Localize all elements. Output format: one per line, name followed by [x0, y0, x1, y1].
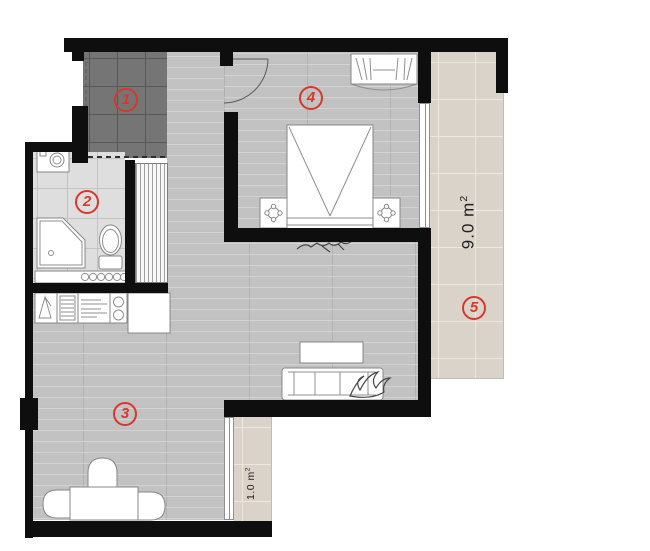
wall-bedroom-left — [224, 112, 238, 242]
bath-shelf-icon — [35, 271, 128, 283]
wall-door-stub — [220, 52, 233, 66]
fixtures-layer — [0, 0, 650, 551]
room-label-bedroom: 4 — [299, 86, 323, 110]
floor-plan: 1 2 3 4 5 9.0 m2 1.0 m2 — [0, 0, 650, 551]
wall-bottom — [25, 521, 272, 537]
wall-top — [64, 38, 508, 52]
dining-table-icon — [70, 487, 138, 520]
wall-left-upper — [72, 52, 84, 61]
bed-icon — [287, 125, 373, 233]
fridge-icon — [128, 293, 170, 333]
small-balcony-area-value: 1.0 m — [245, 471, 257, 500]
balcony-area-label: 9.0 m2 — [453, 177, 475, 267]
wall-living-bottom — [224, 400, 431, 417]
wall-pillar — [20, 398, 38, 430]
room-label-living: 3 — [113, 402, 137, 426]
wall-bedroom-bottom — [224, 228, 431, 242]
room-label-balcony: 5 — [462, 296, 486, 320]
small-balcony-area-label: 1.0 m2 — [242, 454, 255, 514]
nightstand-icon — [260, 198, 287, 228]
wall-right-upper — [418, 52, 431, 103]
wardrobe-icon — [351, 54, 417, 90]
toilet-icon — [99, 225, 122, 269]
dining-balcony-window — [224, 417, 234, 520]
balcony-area-sup: 2 — [458, 195, 470, 202]
shower-icon — [37, 218, 85, 268]
bedroom-balcony-window — [419, 103, 430, 228]
wall-balcony-right — [496, 38, 508, 93]
wall-left-upper — [72, 106, 88, 163]
room-label-bathroom: 2 — [75, 190, 99, 214]
kitchen-counter-icon — [35, 293, 127, 323]
nightstand-icon — [373, 198, 400, 228]
wall-right-mid — [418, 228, 431, 417]
wall-left-main — [25, 152, 33, 538]
wall-bath-bottom — [25, 283, 168, 293]
balcony-area-value: 9.0 m — [459, 202, 478, 250]
wall-bath-top — [25, 142, 88, 152]
sofa-icon — [282, 368, 383, 400]
tv-stand-icon — [300, 342, 363, 363]
wall-bath-right — [125, 160, 135, 293]
small-balcony-area-sup: 2 — [245, 467, 252, 471]
room-label-entry: 1 — [114, 88, 138, 112]
